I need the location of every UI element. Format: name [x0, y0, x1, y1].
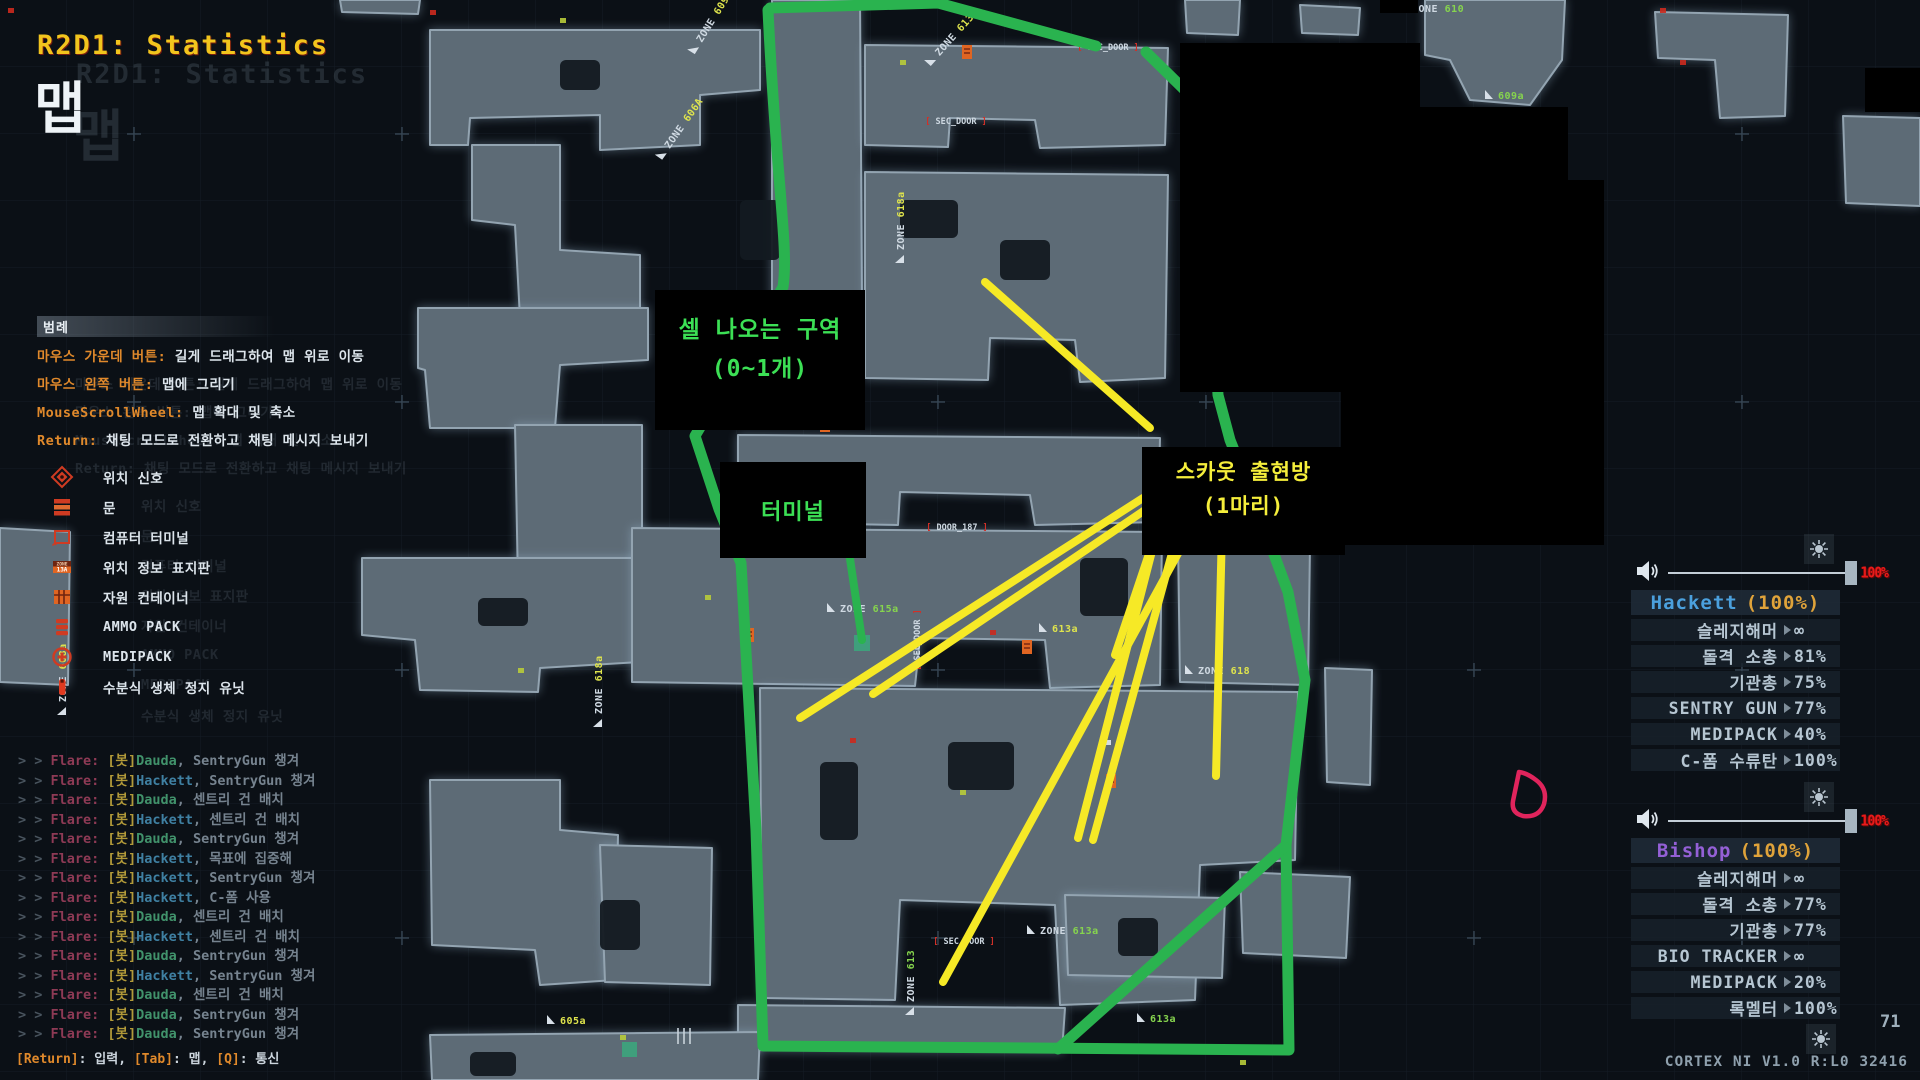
chat-bot-tag: [봇]: [107, 890, 136, 906]
medipack-icon: [49, 645, 75, 669]
legend-control-desc: 맵에 그리기: [162, 377, 235, 393]
legend-item: AMMO PACK: [37, 612, 477, 642]
equipment-row: SENTRY GUN77%: [1631, 697, 1840, 719]
equipment-value: ∞: [1794, 947, 1840, 966]
equipment-value: 40%: [1794, 725, 1840, 744]
chat-speaker: Flare:: [51, 851, 108, 867]
equipment-label: 기관총: [1729, 670, 1778, 694]
equipment-row: 록멜터100%: [1631, 997, 1840, 1019]
chat-line: > > Flare: [봇]Dauda, SentryGun 챙겨: [18, 830, 315, 850]
chat-prefix: > >: [18, 792, 51, 808]
door-icon: [49, 495, 75, 519]
chat-speaker: Flare:: [51, 792, 108, 808]
equipment-row: 기관총75%: [1631, 671, 1840, 693]
map-dot: [960, 790, 966, 795]
footer-key: [Return]: [16, 1052, 79, 1067]
equipment-value: 100%: [1794, 751, 1840, 770]
map-dot: [1240, 1060, 1246, 1065]
door-marker-icon: [1022, 640, 1032, 654]
chat-prefix: > >: [18, 851, 51, 867]
chat-target-name: Hackett: [136, 812, 193, 828]
chat-line: > > Flare: [봇]Hackett, 센트리 건 배치: [18, 928, 315, 948]
footer-key: [Q]: [216, 1052, 239, 1067]
chat-footer-keybinds: [Return]: 입력, [Tab]: 맵, [Q]: 통신: [16, 1048, 279, 1067]
map-dot: [705, 595, 711, 600]
chat-bot-tag: [봇]: [107, 948, 136, 964]
volume-track[interactable]: [1668, 820, 1845, 822]
chat-prefix: > >: [18, 929, 51, 945]
chat-message: , SentryGun 챙겨: [177, 948, 299, 964]
svg-text:[ SEC_DOOR ]: [ SEC_DOOR ]: [925, 117, 986, 127]
chat-target-name: Hackett: [136, 851, 193, 867]
triangle-right-icon: [1784, 703, 1791, 713]
legend-item: 문: [37, 492, 477, 522]
triangle-right-icon: [1784, 925, 1791, 935]
legend-header: 범례: [37, 316, 275, 337]
legend-control-desc: 길게 드래그하여 맵 위로 이동: [175, 349, 365, 365]
chat-message: , 센트리 건 배치: [177, 987, 284, 1003]
svg-text:609a: 609a: [1498, 91, 1524, 102]
equipment-row: 기관총77%: [1631, 919, 1840, 941]
svg-text:ZONE 613a: ZONE 613a: [1040, 926, 1099, 937]
equipment-label: 록멜터: [1729, 996, 1778, 1020]
chat-target-name: Dauda: [136, 753, 177, 769]
triangle-right-icon: [1784, 625, 1791, 635]
equipment-label: 슬레지해머: [1697, 618, 1778, 642]
chat-speaker: Flare:: [51, 909, 108, 925]
legend-item-label: 수분식 생체 정지 유닛: [103, 677, 245, 697]
chat-target-name: Dauda: [136, 909, 177, 925]
svg-text:ZONE 610: ZONE 610: [1412, 4, 1464, 15]
legend-item-label: MEDIPACK: [103, 649, 172, 665]
map-dot: [430, 10, 436, 15]
player-panel-bishop: Bishop (100%) 슬레지해머∞돌격 소총77%기관총77%BIO TR…: [1631, 838, 1840, 1019]
map-dot: [850, 738, 856, 743]
triangle-right-icon: [1784, 729, 1791, 739]
player-panel-hackett: Hackett (100%) 슬레지해머∞돌격 소총81%기관총75%SENTR…: [1631, 590, 1840, 771]
equipment-label: BIO TRACKER: [1658, 947, 1778, 966]
chat-message: , SentryGun 챙겨: [193, 773, 315, 789]
door-marker-icon: [962, 45, 972, 59]
triangle-right-icon: [1784, 755, 1791, 765]
sec-door-label: [ DOOR_187 ]: [926, 523, 987, 533]
equipment-label: 슬레지해머: [1697, 866, 1778, 890]
equipment-value: 20%: [1794, 973, 1840, 992]
map-dot: [990, 630, 996, 635]
ping-icon: [49, 465, 75, 489]
legend-item-label: AMMO PACK: [103, 619, 181, 635]
equipment-label: MEDIPACK: [1691, 725, 1778, 744]
legend-item: 자원 컨테이너: [37, 582, 477, 612]
equipment-label: 돌격 소총: [1702, 644, 1778, 668]
chat-target-name: Dauda: [136, 987, 177, 1003]
chat-bot-tag: [봇]: [107, 1026, 136, 1042]
equipment-value: 100%: [1794, 999, 1840, 1018]
chat-target-name: Hackett: [136, 929, 193, 945]
legend-item: 위치 신호: [37, 462, 477, 492]
equipment-row: MEDIPACK20%: [1631, 971, 1840, 993]
page-number: 71: [1880, 1012, 1900, 1032]
footer-label: : 통신: [240, 1052, 280, 1067]
map-dot: [8, 8, 14, 13]
chat-line: > > Flare: [봇]Hackett, SentryGun 챙겨: [18, 967, 315, 987]
equipment-row: C-폼 수류탄100%: [1631, 749, 1840, 771]
chat-bot-tag: [봇]: [107, 753, 136, 769]
footer-label: : 맵,: [173, 1052, 216, 1067]
terminal-icon: [49, 525, 75, 549]
chat-message: , SentryGun 챙겨: [193, 968, 315, 984]
chat-prefix: > >: [18, 1007, 51, 1023]
chat-prefix: > >: [18, 968, 51, 984]
chat-line: > > Flare: [봇]Hackett, 센트리 건 배치: [18, 811, 315, 831]
legend-item-label: 컴퓨터 터미널: [103, 527, 189, 547]
annotation-scout: 스카웃 출현방 (1마리): [1142, 447, 1345, 555]
svg-text:ZONE 618a: ZONE 618a: [896, 191, 907, 250]
chat-bot-tag: [봇]: [107, 812, 136, 828]
chat-bot-tag: [봇]: [107, 1007, 136, 1023]
legend-item: 컴퓨터 터미널: [37, 522, 477, 552]
chat-line: > > Flare: [봇]Dauda, 센트리 건 배치: [18, 908, 315, 928]
chat-bot-tag: [봇]: [107, 968, 136, 984]
chat-target-name: Dauda: [136, 1007, 177, 1023]
volume-handle[interactable]: [1845, 561, 1857, 585]
speaker-icon: [1634, 806, 1660, 836]
legend-items: 위치 신호문컴퓨터 터미널ZONE13A위치 정보 표지판자원 컨테이너AMMO…: [37, 462, 477, 702]
container-icon: [49, 585, 75, 609]
chat-message: , C-폼 사용: [193, 890, 271, 906]
map-dot: [518, 668, 524, 673]
equipment-value: 75%: [1794, 673, 1840, 692]
equipment-value: 77%: [1794, 921, 1840, 940]
equipment-row: 돌격 소총77%: [1631, 893, 1840, 915]
equipment-row: 슬레지해머∞: [1631, 867, 1840, 889]
chat-prefix: > >: [18, 831, 51, 847]
chat-prefix: > >: [18, 753, 51, 769]
chat-target-name: Hackett: [136, 968, 193, 984]
legend-item: 수분식 생체 정지 유닛: [37, 672, 477, 702]
chat-prefix: > >: [18, 870, 51, 886]
legend-controls: 마우스 가운데 버튼: 길게 드래그하여 맵 위로 이동마우스 왼쪽 버튼: 맵…: [37, 345, 477, 449]
chat-speaker: Flare:: [51, 948, 108, 964]
chat-message: , SentryGun 챙겨: [177, 1007, 299, 1023]
legend-item: MEDIPACK: [37, 642, 477, 672]
chat-prefix: > >: [18, 987, 51, 1003]
legend-control-desc: 채팅 모드로 전환하고 채팅 메시지 보내기: [106, 433, 369, 449]
triangle-right-icon: [1784, 1003, 1791, 1013]
chat-speaker: Flare:: [51, 831, 108, 847]
chat-bot-tag: [봇]: [107, 792, 136, 808]
equipment-value: ∞: [1794, 621, 1840, 640]
speaker-icon: [1634, 558, 1660, 588]
equipment-value: 81%: [1794, 647, 1840, 666]
svg-text:ZONE 618a: ZONE 618a: [594, 655, 605, 714]
page-title: 맵: [34, 64, 88, 145]
volume-handle[interactable]: [1845, 809, 1857, 833]
chat-bot-tag: [봇]: [107, 929, 136, 945]
ammo-icon: [49, 615, 75, 639]
sec-door-label: [ SEC_DOOR ]: [925, 117, 986, 127]
chat-prefix: > >: [18, 773, 51, 789]
equipment-row: 돌격 소총81%: [1631, 645, 1840, 667]
chat-bot-tag: [봇]: [107, 987, 136, 1003]
chat-speaker: Flare:: [51, 773, 108, 789]
legend-control-key: 마우스 왼쪽 버튼:: [37, 377, 162, 393]
legend-item: ZONE13A위치 정보 표지판: [37, 552, 477, 582]
chat-speaker: Flare:: [51, 753, 108, 769]
legend-control-key: Return:: [37, 433, 106, 449]
player-health: (100%): [1746, 592, 1821, 614]
chat-prefix: > >: [18, 890, 51, 906]
equipment-label: 기관총: [1729, 918, 1778, 942]
legend-control-key: 마우스 가운데 버튼:: [37, 349, 175, 365]
chat-speaker: Flare:: [51, 812, 108, 828]
chat-line: > > Flare: [봇]Dauda, 센트리 건 배치: [18, 986, 315, 1006]
equipment-label: C-폼 수류탄: [1680, 748, 1778, 772]
equipment-label: 돌격 소총: [1702, 892, 1778, 916]
legend-item-label: 위치 신호: [103, 467, 163, 487]
player-health: (100%): [1740, 840, 1815, 862]
chat-line: > > Flare: [봇]Dauda, SentryGun 챙겨: [18, 752, 315, 772]
brightness-icon[interactable]: [1806, 1024, 1836, 1054]
equipment-value: 77%: [1794, 895, 1840, 914]
chat-prefix: > >: [18, 812, 51, 828]
player-header: Hackett (100%): [1631, 590, 1840, 615]
equipment-value: ∞: [1794, 869, 1840, 888]
svg-text:13A: 13A: [57, 567, 68, 574]
annotation-terminal-label: 터미널: [761, 494, 825, 526]
chat-target-name: Hackett: [136, 870, 193, 886]
svg-text:613a: 613a: [1052, 624, 1078, 635]
footer-key: [Tab]: [134, 1052, 173, 1067]
volume-percent: 100%: [1861, 564, 1888, 581]
annotation-terminal: 터미널: [720, 462, 866, 558]
chat-target-name: Dauda: [136, 948, 177, 964]
chat-message: , SentryGun 챙겨: [177, 831, 299, 847]
legend-control-line: Return: 채팅 모드로 전환하고 채팅 메시지 보내기: [37, 429, 477, 449]
annotation-scout-line1: 스카웃 출현방: [1176, 456, 1312, 486]
chat-message: , 센트리 건 배치: [193, 929, 300, 945]
chat-prefix: > >: [18, 909, 51, 925]
volume-percent: 100%: [1861, 812, 1888, 829]
chat-speaker: Flare:: [51, 968, 108, 984]
chat-speaker: Flare:: [51, 890, 108, 906]
legend-item-label: 자원 컨테이너: [103, 587, 189, 607]
voice-volume-slider[interactable]: 100%: [1634, 806, 1888, 836]
annotation-cell-line2: (0~1개): [712, 349, 808, 383]
chat-target-name: Dauda: [136, 792, 177, 808]
map-dot: [1680, 60, 1686, 65]
equipment-row: MEDIPACK40%: [1631, 723, 1840, 745]
svg-text:613a: 613a: [1150, 1014, 1176, 1025]
chat-line: > > Flare: [봇]Hackett, SentryGun 챙겨: [18, 869, 315, 889]
triangle-right-icon: [1784, 873, 1791, 883]
triangle-right-icon: [1784, 977, 1791, 987]
chat-line: > > Flare: [봇]Dauda, SentryGun 챙겨: [18, 1006, 315, 1026]
triangle-right-icon: [1784, 899, 1791, 909]
chat-line: > > Flare: [봇]Dauda, SentryGun 챙겨: [18, 947, 315, 967]
chat-message: , SentryGun 챙겨: [177, 1026, 299, 1042]
player-name: Bishop: [1657, 840, 1732, 862]
chat-prefix: > >: [18, 1026, 51, 1042]
equipment-label: SENTRY GUN: [1669, 699, 1778, 718]
mission-title: R2D1: Statistics: [37, 30, 329, 61]
chat-bot-tag: [봇]: [107, 831, 136, 847]
legend-control-line: 마우스 왼쪽 버튼: 맵에 그리기: [37, 373, 477, 393]
chat-target-name: Hackett: [136, 773, 193, 789]
legend-item-label: 문: [103, 497, 116, 517]
chat-speaker: Flare:: [51, 987, 108, 1003]
chat-speaker: Flare:: [51, 1007, 108, 1023]
map-dot: [620, 1035, 626, 1040]
chat-message: , 센트리 건 배치: [193, 812, 300, 828]
chat-log: > > Flare: [봇]Dauda, SentryGun 챙겨> > Fla…: [18, 752, 315, 1045]
svg-text:ZONE 613: ZONE 613: [906, 950, 917, 1002]
zone-sign-icon: ZONE13A: [49, 555, 75, 579]
triangle-right-icon: [1784, 677, 1791, 687]
svg-text:605a: 605a: [560, 1016, 586, 1027]
voice-volume-slider[interactable]: 100%: [1634, 558, 1888, 588]
annotation-cell-line1: 셀 나오는 구역: [679, 310, 842, 344]
chat-prefix: > >: [18, 948, 51, 964]
equipment-value: 77%: [1794, 699, 1840, 718]
chat-bot-tag: [봇]: [107, 773, 136, 789]
annotation-cell-zone: 셀 나오는 구역 (0~1개): [655, 290, 865, 430]
chat-line: > > Flare: [봇]Hackett, SentryGun 챙겨: [18, 772, 315, 792]
map-dot: [560, 18, 566, 23]
chat-message: , 센트리 건 배치: [177, 792, 284, 808]
chat-bot-tag: [봇]: [107, 870, 136, 886]
legend-control-key: MouseScrollWheel:: [37, 405, 192, 421]
chat-line: > > Flare: [봇]Dauda, SentryGun 챙겨: [18, 1025, 315, 1045]
legend-control-desc: 맵 확대 및 축소: [192, 405, 295, 421]
map-dot: [900, 60, 906, 65]
chat-message: , SentryGun 챙겨: [193, 870, 315, 886]
system-version-label: CORTEX NI V1.0 R:L0 32416: [1640, 1054, 1908, 1070]
chat-line: > > Flare: [봇]Dauda, 센트리 건 배치: [18, 791, 315, 811]
chat-target-name: Dauda: [136, 1026, 177, 1042]
player-header: Bishop (100%): [1631, 838, 1840, 863]
chat-bot-tag: [봇]: [107, 851, 136, 867]
legend-control-line: MouseScrollWheel: 맵 확대 및 축소: [37, 401, 477, 421]
chat-bot-tag: [봇]: [107, 909, 136, 925]
equipment-label: MEDIPACK: [1691, 973, 1778, 992]
chat-message: , 목표에 집중해: [193, 851, 292, 867]
triangle-right-icon: [1784, 951, 1791, 961]
svg-text:ZONE 615a: ZONE 615a: [840, 604, 899, 615]
legend-panel: 범례 마우스 가운데 버튼: 길게 드래그하여 맵 위로 이동마우스 왼쪽 버튼…: [37, 316, 477, 702]
volume-track[interactable]: [1668, 572, 1845, 574]
chat-line: > > Flare: [봇]Hackett, C-폼 사용: [18, 889, 315, 909]
chat-speaker: Flare:: [51, 1026, 108, 1042]
chat-speaker: Flare:: [51, 870, 108, 886]
equipment-row: BIO TRACKER∞: [1631, 945, 1840, 967]
chat-target-name: Hackett: [136, 890, 193, 906]
chat-line: > > Flare: [봇]Hackett, 목표에 집중해: [18, 850, 315, 870]
triangle-right-icon: [1784, 651, 1791, 661]
legend-item-label: 위치 정보 표지판: [103, 557, 211, 577]
legend-control-line: 마우스 가운데 버튼: 길게 드래그하여 맵 위로 이동: [37, 345, 477, 365]
hsu-icon: [49, 675, 75, 699]
footer-label: : 입력,: [79, 1052, 134, 1067]
chat-message: , 센트리 건 배치: [177, 909, 284, 925]
map-dot: [1660, 8, 1666, 13]
annotation-scout-line2: (1마리): [1203, 490, 1285, 520]
player-name: Hackett: [1651, 592, 1738, 614]
equipment-row: 슬레지해머∞: [1631, 619, 1840, 641]
chat-target-name: Dauda: [136, 831, 177, 847]
chat-message: , SentryGun 챙겨: [177, 753, 299, 769]
svg-text:ZONE 618: ZONE 618: [1198, 666, 1250, 677]
svg-text:[ DOOR_187 ]: [ DOOR_187 ]: [926, 523, 987, 533]
chat-speaker: Flare:: [51, 929, 108, 945]
